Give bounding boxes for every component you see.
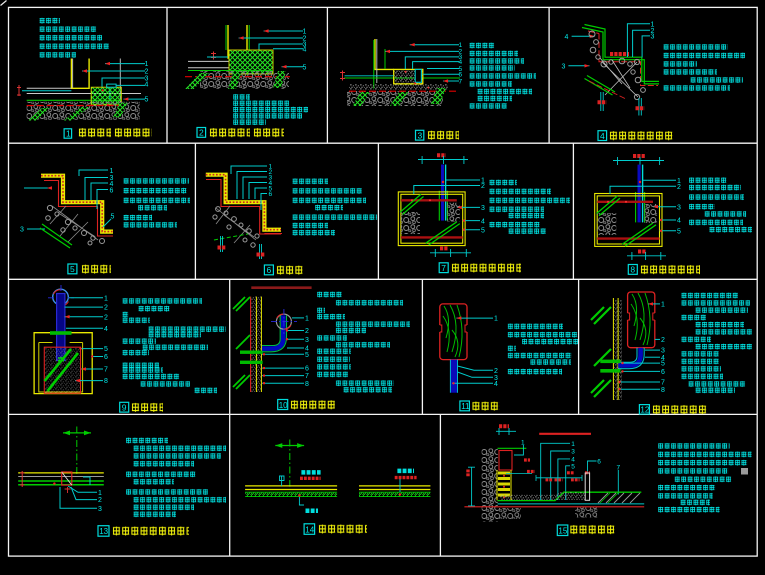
svg-text:5: 5 <box>303 64 307 71</box>
svg-text:3: 3 <box>305 337 309 344</box>
svg-text:6: 6 <box>104 354 108 361</box>
svg-text:7: 7 <box>104 367 108 374</box>
svg-text:7: 7 <box>459 78 463 85</box>
svg-text:9: 9 <box>122 403 127 413</box>
svg-text:7: 7 <box>661 380 665 387</box>
svg-text:3: 3 <box>661 348 665 355</box>
svg-text:5: 5 <box>481 227 485 234</box>
svg-text:1: 1 <box>145 61 149 68</box>
svg-text:6: 6 <box>269 191 273 198</box>
svg-text:4: 4 <box>600 131 605 141</box>
svg-text:6: 6 <box>267 265 272 275</box>
svg-text:3: 3 <box>418 131 423 141</box>
svg-text:5: 5 <box>571 463 575 470</box>
svg-text:14: 14 <box>305 525 314 534</box>
svg-text:13: 13 <box>99 527 108 536</box>
svg-text:4: 4 <box>303 46 307 53</box>
svg-text:5: 5 <box>104 346 108 353</box>
svg-text:2: 2 <box>481 183 485 190</box>
svg-text:1: 1 <box>521 439 525 446</box>
svg-text:2: 2 <box>494 368 498 375</box>
svg-text:7: 7 <box>441 263 446 273</box>
svg-text:3: 3 <box>651 34 655 41</box>
svg-text:1: 1 <box>66 129 71 139</box>
svg-text:3: 3 <box>20 227 24 234</box>
svg-text:1: 1 <box>305 316 309 323</box>
svg-text:1: 1 <box>303 29 307 36</box>
svg-text:1: 1 <box>98 490 102 497</box>
svg-text:8: 8 <box>661 387 665 394</box>
svg-text:11: 11 <box>461 402 470 411</box>
svg-text:4: 4 <box>104 326 108 333</box>
svg-text:15: 15 <box>558 527 567 536</box>
svg-text:3: 3 <box>481 205 485 212</box>
svg-text:5: 5 <box>677 229 681 236</box>
svg-text:5: 5 <box>70 264 75 274</box>
svg-text:4: 4 <box>145 82 149 89</box>
svg-text:2: 2 <box>677 184 681 191</box>
svg-text:5: 5 <box>111 214 115 221</box>
svg-text:2: 2 <box>104 314 108 321</box>
svg-text:1: 1 <box>104 295 108 302</box>
svg-text:3: 3 <box>562 63 566 70</box>
svg-text:6: 6 <box>597 459 601 466</box>
svg-text:1: 1 <box>494 316 498 323</box>
svg-text:4: 4 <box>565 34 569 41</box>
svg-text:7: 7 <box>617 464 621 471</box>
svg-text:8: 8 <box>104 378 108 385</box>
svg-text:5: 5 <box>305 352 309 359</box>
svg-text:2: 2 <box>199 128 204 138</box>
svg-text:8: 8 <box>305 381 309 388</box>
svg-text:3: 3 <box>98 506 102 513</box>
svg-text:4: 4 <box>494 381 498 388</box>
svg-text:7: 7 <box>305 373 309 380</box>
svg-text:3: 3 <box>571 449 575 456</box>
svg-text:10: 10 <box>279 401 288 410</box>
svg-text:1: 1 <box>661 302 665 309</box>
svg-text:6: 6 <box>110 187 114 194</box>
svg-text:12: 12 <box>640 406 649 415</box>
svg-text:6: 6 <box>661 369 665 376</box>
svg-text:4: 4 <box>481 218 485 225</box>
svg-text:2: 2 <box>98 497 102 504</box>
svg-text:8: 8 <box>630 265 635 275</box>
svg-text:3: 3 <box>677 204 681 211</box>
svg-text:5: 5 <box>145 97 149 104</box>
svg-text:2: 2 <box>104 305 108 312</box>
svg-text:5: 5 <box>661 361 665 368</box>
svg-text:2: 2 <box>145 69 149 76</box>
svg-text:1: 1 <box>110 168 114 175</box>
svg-text:6: 6 <box>305 366 309 373</box>
svg-text:2: 2 <box>305 328 309 335</box>
svg-text:2: 2 <box>661 337 665 344</box>
svg-text:1: 1 <box>571 441 575 448</box>
svg-text:4: 4 <box>677 218 681 225</box>
